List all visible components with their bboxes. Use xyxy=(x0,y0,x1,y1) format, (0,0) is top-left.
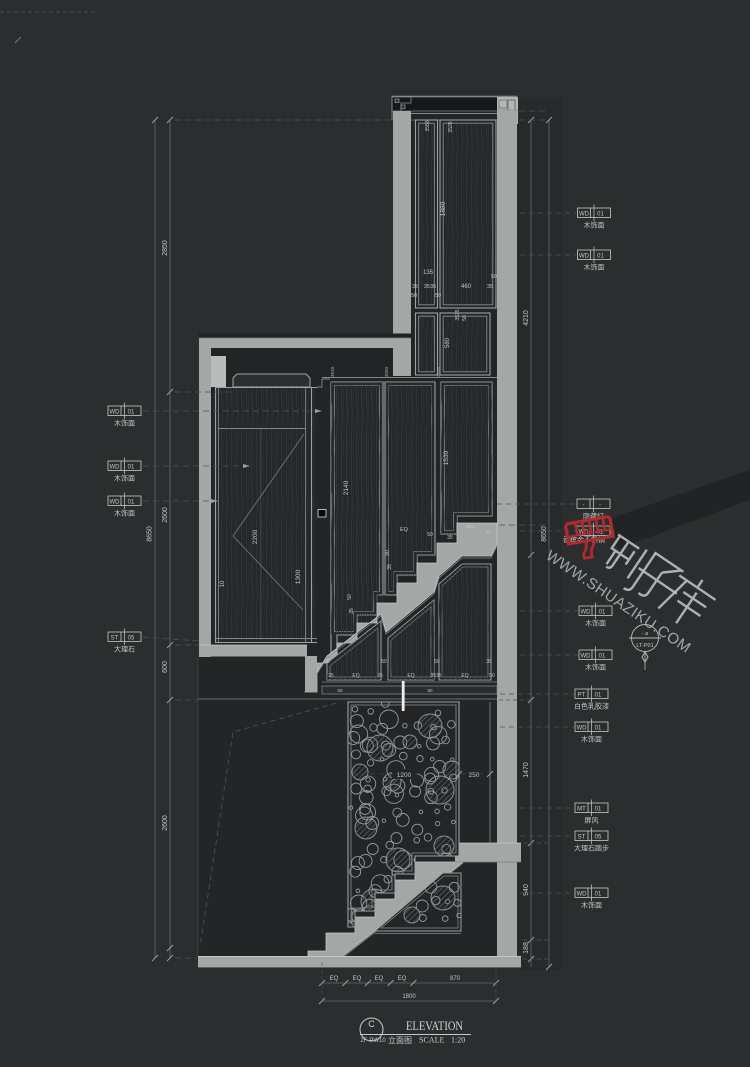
svg-text:C: C xyxy=(368,1019,375,1029)
svg-text:01: 01 xyxy=(128,464,135,470)
svg-text:LT-P01: LT-P01 xyxy=(636,643,653,649)
svg-text:EQ: EQ xyxy=(375,976,384,982)
svg-text:1300: 1300 xyxy=(295,569,302,584)
svg-text:50: 50 xyxy=(347,594,353,600)
svg-text:立面图: 立面图 xyxy=(388,1035,412,1045)
svg-text:EQ: EQ xyxy=(352,673,359,679)
svg-text:EQ: EQ xyxy=(407,673,414,679)
svg-text:01: 01 xyxy=(595,725,602,731)
svg-text:50: 50 xyxy=(427,688,433,693)
svg-text:3535: 3535 xyxy=(430,673,441,679)
svg-text:05: 05 xyxy=(595,834,602,840)
svg-text:木饰面: 木饰面 xyxy=(585,619,606,628)
svg-text:1530: 1530 xyxy=(443,450,450,465)
svg-text:35: 35 xyxy=(377,673,383,679)
svg-text:250: 250 xyxy=(469,772,480,779)
svg-text:01: 01 xyxy=(595,692,602,698)
svg-text:木饰面: 木饰面 xyxy=(584,263,605,272)
svg-text:50: 50 xyxy=(491,274,497,280)
svg-text:2600: 2600 xyxy=(162,507,169,523)
svg-text:WD: WD xyxy=(577,725,588,731)
svg-text:35: 35 xyxy=(487,284,493,290)
svg-text:3535: 3535 xyxy=(455,309,461,320)
svg-text:870: 870 xyxy=(450,976,461,982)
svg-text:ELEVATION: ELEVATION xyxy=(406,1018,463,1033)
svg-text:01: 01 xyxy=(595,806,602,812)
svg-text:WD: WD xyxy=(579,211,590,217)
svg-text:3535: 3535 xyxy=(424,284,436,290)
svg-text:白色乳胶漆: 白色乳胶漆 xyxy=(574,702,609,711)
svg-text:3550: 3550 xyxy=(384,366,389,377)
svg-text:1470: 1470 xyxy=(523,762,530,778)
svg-text:EQ: EQ xyxy=(330,976,339,982)
svg-text:EQ: EQ xyxy=(353,976,362,982)
svg-text:ST: ST xyxy=(578,834,586,840)
svg-text:460: 460 xyxy=(461,284,472,290)
svg-text:35: 35 xyxy=(387,564,393,570)
svg-text:01: 01 xyxy=(595,891,602,897)
svg-text:01: 01 xyxy=(597,253,604,259)
svg-text:木饰面: 木饰面 xyxy=(585,663,606,672)
svg-text:WD: WD xyxy=(581,609,592,615)
svg-text:10: 10 xyxy=(220,580,226,587)
svg-text:50: 50 xyxy=(462,315,468,321)
svg-text:木饰面: 木饰面 xyxy=(584,221,605,230)
svg-text:50: 50 xyxy=(485,529,491,534)
svg-text:木饰面: 木饰面 xyxy=(114,419,135,428)
svg-text:3510: 3510 xyxy=(330,366,335,377)
svg-text:50: 50 xyxy=(411,293,417,299)
svg-text:01: 01 xyxy=(128,499,135,505)
svg-text:WD: WD xyxy=(581,653,592,659)
svg-text:WD: WD xyxy=(110,499,121,505)
svg-text:01: 01 xyxy=(128,409,135,415)
svg-text:1880: 1880 xyxy=(440,201,447,216)
svg-text:50: 50 xyxy=(427,532,433,538)
svg-text:35: 35 xyxy=(412,284,418,290)
svg-text:-: - xyxy=(583,502,585,508)
svg-text:35: 35 xyxy=(328,673,334,679)
svg-text:2200: 2200 xyxy=(252,529,259,544)
svg-text:1:20: 1:20 xyxy=(451,1036,465,1045)
svg-text:940: 940 xyxy=(523,884,530,896)
svg-text:50: 50 xyxy=(434,659,440,665)
svg-text:2850: 2850 xyxy=(162,240,169,256)
svg-text:4210: 4210 xyxy=(523,310,530,326)
svg-text:-: - xyxy=(599,502,601,508)
svg-text:2140: 2140 xyxy=(343,480,350,495)
svg-text:600: 600 xyxy=(162,661,169,673)
svg-text:01: 01 xyxy=(599,609,606,615)
svg-text:3535: 3535 xyxy=(448,121,454,132)
svg-text:3550: 3550 xyxy=(425,120,431,131)
svg-text:1200: 1200 xyxy=(397,772,412,779)
svg-text:屏风: 屏风 xyxy=(585,817,599,825)
svg-text:35: 35 xyxy=(486,659,492,665)
svg-text:580: 580 xyxy=(445,337,451,348)
svg-text:木饰面: 木饰面 xyxy=(114,509,135,518)
svg-text:1800: 1800 xyxy=(402,994,416,1000)
svg-text:EQ: EQ xyxy=(398,976,407,982)
svg-text:80: 80 xyxy=(385,550,391,556)
svg-text:WD: WD xyxy=(577,891,588,897)
svg-text:大理石: 大理石 xyxy=(114,645,135,654)
svg-text:3535: 3535 xyxy=(465,524,476,529)
svg-text:135: 135 xyxy=(423,270,434,276)
svg-text:8650: 8650 xyxy=(541,526,548,542)
svg-text:2F-PW10: 2F-PW10 xyxy=(360,1038,386,1044)
svg-text:188: 188 xyxy=(523,942,530,954)
svg-text:05: 05 xyxy=(128,635,135,641)
svg-text:50: 50 xyxy=(381,659,387,665)
svg-text:50: 50 xyxy=(324,659,330,665)
svg-text:PT: PT xyxy=(578,692,586,698)
svg-text:MT: MT xyxy=(577,806,586,812)
svg-text:2600: 2600 xyxy=(162,815,169,831)
svg-text:EQ: EQ xyxy=(461,673,468,679)
svg-text:ST: ST xyxy=(111,635,119,641)
svg-text:木饰面: 木饰面 xyxy=(581,735,602,744)
svg-text:WD: WD xyxy=(579,253,590,259)
svg-text:EQ: EQ xyxy=(400,527,409,533)
svg-text:木饰面: 木饰面 xyxy=(581,901,602,910)
svg-text:大理石踏步: 大理石踏步 xyxy=(574,844,609,853)
svg-text:木饰面: 木饰面 xyxy=(114,474,135,483)
svg-text:WD: WD xyxy=(110,464,121,470)
svg-text:01: 01 xyxy=(597,211,604,217)
svg-text:50: 50 xyxy=(489,673,495,679)
svg-text:50: 50 xyxy=(337,688,343,693)
svg-text:3535: 3535 xyxy=(436,366,441,377)
svg-text:35: 35 xyxy=(349,608,355,614)
svg-text:01: 01 xyxy=(599,653,606,659)
svg-text:50: 50 xyxy=(435,293,441,299)
svg-text:WD: WD xyxy=(110,409,121,415)
svg-text:35: 35 xyxy=(447,535,453,541)
svg-text:SCALE: SCALE xyxy=(419,1036,444,1045)
svg-text:8650: 8650 xyxy=(147,526,154,542)
